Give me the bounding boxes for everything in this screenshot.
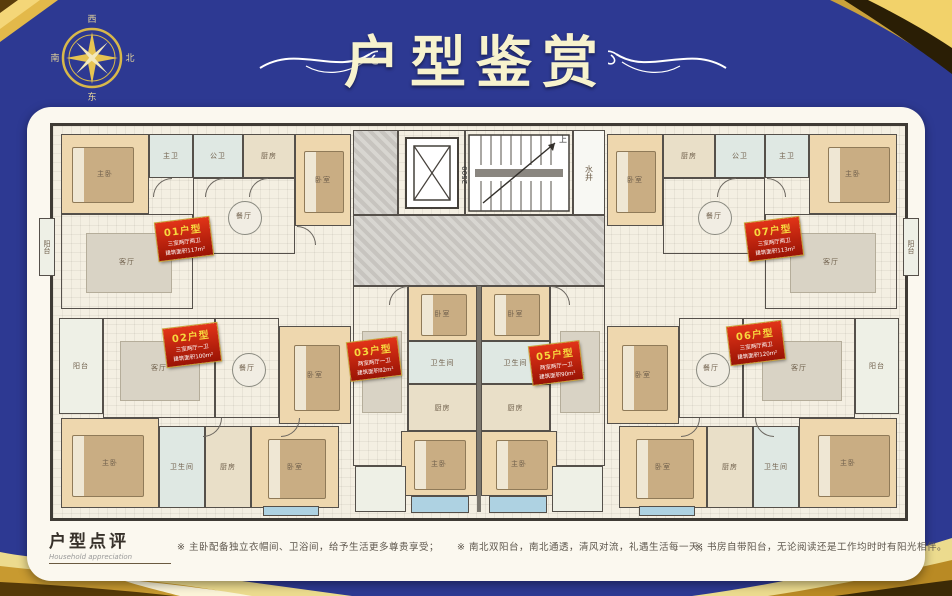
room-label: 阳台 bbox=[42, 240, 52, 254]
unit01-master-bedroom: 主卧 bbox=[61, 134, 149, 214]
unit02-master-bedroom: 主卧 bbox=[61, 418, 159, 508]
water-shaft: 水井 bbox=[573, 130, 605, 215]
unit03-master-bedroom: 主卧 bbox=[401, 431, 477, 496]
unit01-master-bath: 主卫 bbox=[149, 134, 193, 178]
unit06-master-bedroom: 主卧 bbox=[799, 418, 897, 508]
unit02-bedroom3: 卧室 bbox=[251, 426, 339, 508]
unit07-tag: 07户型 三室两厅两卫 建筑面积113m² bbox=[745, 217, 803, 261]
stairs-icon bbox=[467, 133, 571, 213]
footer-title: 户型点评 bbox=[49, 527, 171, 552]
room-label: 厨房 bbox=[261, 151, 277, 161]
unit02-dining: 餐厅 bbox=[215, 318, 279, 418]
unit07-master-bedroom: 主卧 bbox=[809, 134, 897, 214]
room-label: 餐厅 bbox=[706, 211, 722, 221]
room-label: 餐厅 bbox=[703, 363, 719, 373]
room-label: 厨房 bbox=[508, 403, 524, 413]
unit02-bedroom2: 卧室 bbox=[279, 326, 351, 424]
room-label: 公卫 bbox=[732, 151, 748, 161]
floorplan-panel: 2500 上 水井 主卧 主卫 公卫 厨房 卧室 餐厅 客 bbox=[27, 107, 925, 581]
unit02-bottom-balcony bbox=[263, 506, 319, 516]
room-label: 主卧 bbox=[102, 458, 118, 468]
room-label: 卫生间 bbox=[431, 358, 455, 368]
unit07-bedroom: 卧室 bbox=[607, 134, 663, 226]
room-label: 客厅 bbox=[823, 257, 839, 267]
room-label: 卧室 bbox=[307, 370, 323, 380]
room-label: 客厅 bbox=[791, 363, 807, 373]
building-floorplan: 2500 上 水井 主卧 主卫 公卫 厨房 卧室 餐厅 客 bbox=[50, 123, 908, 521]
unit03-bedroom: 卧室 bbox=[408, 286, 477, 341]
unit06-kitchen: 厨房 bbox=[707, 426, 753, 508]
unit05-terrace bbox=[552, 466, 603, 512]
unit02-bath: 卫生间 bbox=[159, 426, 205, 508]
room-label: 厨房 bbox=[435, 403, 451, 413]
room-label: 主卧 bbox=[97, 169, 113, 179]
corridor bbox=[353, 215, 605, 286]
unit02-balcony: 阳台 bbox=[59, 318, 103, 414]
compass-south-label: 南 bbox=[50, 52, 59, 64]
room-label: 阳台 bbox=[869, 361, 885, 371]
room-label: 主卧 bbox=[845, 169, 861, 179]
unit01-tag: 01户型 三室两厅两卫 建筑面积117m² bbox=[155, 217, 213, 261]
unit06-bath: 卫生间 bbox=[753, 426, 799, 508]
room-label: 餐厅 bbox=[236, 211, 252, 221]
compass-west-label: 西 bbox=[87, 14, 96, 25]
footer-note-2: ※ 南北双阳台，南北通透，清风对流，礼遇生活每一天； bbox=[457, 539, 709, 553]
unit05-bottom-balcony bbox=[489, 496, 547, 513]
unit01-bedroom2: 卧室 bbox=[295, 134, 351, 226]
room-label: 阳台 bbox=[906, 240, 916, 254]
room-label: 公卫 bbox=[210, 151, 226, 161]
unit07-balcony: 阳台 bbox=[903, 218, 919, 276]
unit05-master-bedroom: 主卧 bbox=[481, 431, 557, 496]
door-arc-icon bbox=[767, 178, 786, 197]
compass-north-label: 北 bbox=[125, 53, 134, 64]
door-arc-icon bbox=[153, 178, 172, 197]
unit03-tag: 03户型 两室两厅一卫 建筑面积82m² bbox=[347, 337, 401, 381]
room-label: 卧室 bbox=[635, 370, 651, 380]
corner-ribbon-top-right-icon bbox=[800, 0, 952, 96]
footer-note-1: ※ 主卧配备独立衣帽间、卫浴间，给予生活更多尊贵享受； bbox=[177, 539, 439, 553]
unit06-balcony: 阳台 bbox=[855, 318, 899, 414]
unit05-bedroom: 卧室 bbox=[481, 286, 550, 341]
unit07-kitchen: 厨房 bbox=[663, 134, 715, 178]
room-label: 餐厅 bbox=[239, 363, 255, 373]
room-label: 卧室 bbox=[627, 175, 643, 185]
room-label: 卧室 bbox=[315, 175, 331, 185]
unit03-terrace bbox=[355, 466, 406, 512]
unit03-bottom-balcony bbox=[411, 496, 469, 513]
page-title: 户型鉴赏 bbox=[344, 18, 608, 99]
unit03-kitchen: 厨房 bbox=[408, 384, 477, 431]
water-shaft-label: 水井 bbox=[584, 165, 595, 181]
unit01-balcony: 阳台 bbox=[39, 218, 55, 276]
elevator-shaft bbox=[398, 130, 465, 215]
room-label: 主卧 bbox=[840, 458, 856, 468]
footer-subtitle: Household appreciation bbox=[49, 553, 171, 561]
elevator-icon bbox=[402, 134, 462, 212]
room-label: 客厅 bbox=[119, 257, 135, 267]
unit05-kitchen: 厨房 bbox=[481, 384, 550, 431]
room-label: 主卫 bbox=[163, 151, 179, 161]
room-label: 卫生间 bbox=[764, 462, 788, 472]
stair-dimension-label: 2500 bbox=[461, 166, 469, 184]
lobby-area bbox=[353, 130, 398, 215]
room-label: 主卧 bbox=[431, 459, 447, 469]
door-arc-icon bbox=[297, 226, 316, 245]
unit03-bath: 卫生间 bbox=[408, 341, 477, 384]
room-label: 厨房 bbox=[220, 462, 236, 472]
room-label: 卫生间 bbox=[504, 358, 528, 368]
unit07-public-bath: 公卫 bbox=[715, 134, 765, 178]
stairs-up-label: 上 bbox=[559, 134, 567, 145]
unit06-bedroom2: 卧室 bbox=[619, 426, 707, 508]
unit01-kitchen: 厨房 bbox=[243, 134, 295, 178]
room-label: 厨房 bbox=[722, 462, 738, 472]
footer-note-3: ※ 书房自带阳台，无论阅读还是工作均时时有阳光相伴。 bbox=[695, 539, 947, 553]
room-label: 厨房 bbox=[681, 151, 697, 161]
unit01-public-bath: 公卫 bbox=[193, 134, 243, 178]
unit06-bottom-balcony bbox=[639, 506, 695, 516]
compass-east-label: 东 bbox=[87, 91, 96, 102]
room-label: 卫生间 bbox=[170, 462, 194, 472]
flourish-right-icon bbox=[608, 38, 728, 82]
unit02-tag: 02户型 三室两厅一卫 建筑面积100m² bbox=[163, 323, 221, 367]
room-label: 主卧 bbox=[511, 459, 527, 469]
footer-title-block: 户型点评 Household appreciation bbox=[49, 527, 171, 564]
room-label: 客厅 bbox=[151, 363, 167, 373]
unit07-master-bath: 主卫 bbox=[765, 134, 809, 178]
room-label: 阳台 bbox=[73, 361, 89, 371]
room-label: 卧室 bbox=[508, 309, 524, 319]
stairwell bbox=[465, 130, 573, 215]
unit06-tag: 06户型 三室两厅两卫 建筑面积120m² bbox=[727, 321, 785, 365]
poster-page: { "page": { "background_color": "#2d3992… bbox=[0, 0, 952, 596]
unit02-kitchen: 厨房 bbox=[205, 426, 251, 508]
room-label: 卧室 bbox=[287, 462, 303, 472]
room-label: 卧室 bbox=[655, 462, 671, 472]
unit06-bedroom: 卧室 bbox=[607, 326, 679, 424]
unit05-tag: 05户型 两室两厅一卫 建筑面积90m² bbox=[529, 341, 583, 385]
compass-icon: 西 北 南 东 bbox=[46, 10, 138, 102]
room-label: 主卫 bbox=[779, 151, 795, 161]
room-label: 卧室 bbox=[435, 309, 451, 319]
